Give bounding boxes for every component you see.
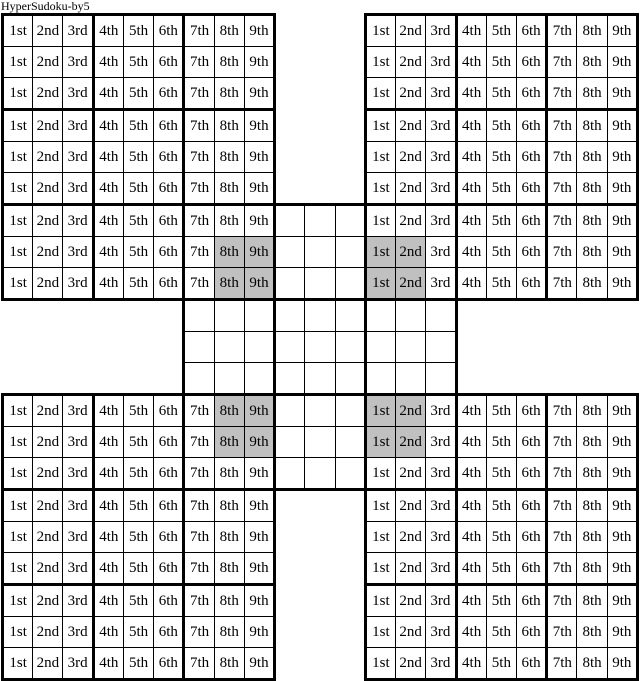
- sudoku-cell[interactable]: 7th: [184, 490, 214, 522]
- sudoku-cell[interactable]: 7th: [184, 648, 214, 680]
- sudoku-cell[interactable]: 5th: [486, 585, 516, 617]
- sudoku-cell[interactable]: 1st: [3, 110, 33, 142]
- sudoku-cell[interactable]: 3rd: [63, 427, 93, 458]
- sudoku-cell[interactable]: 6th: [516, 585, 546, 617]
- sudoku-cell[interactable]: 3rd: [63, 205, 93, 237]
- sudoku-cell[interactable]: 7th: [184, 427, 214, 458]
- sudoku-cell[interactable]: 2nd: [33, 173, 63, 205]
- sudoku-cell[interactable]: 2nd: [33, 78, 63, 110]
- sudoku-cell[interactable]: [426, 363, 456, 395]
- sudoku-cell[interactable]: 3rd: [63, 142, 93, 173]
- sudoku-cell[interactable]: 1st: [365, 205, 395, 237]
- sudoku-cell[interactable]: 3rd: [63, 553, 93, 585]
- sudoku-cell[interactable]: 5th: [123, 648, 153, 680]
- sudoku-cell[interactable]: 5th: [123, 110, 153, 142]
- sudoku-cell[interactable]: 3rd: [426, 237, 456, 268]
- sudoku-cell[interactable]: 4th: [93, 78, 123, 110]
- sudoku-cell[interactable]: 1st: [3, 553, 33, 585]
- sudoku-cell[interactable]: 5th: [486, 173, 516, 205]
- sudoku-cell[interactable]: 7th: [547, 237, 577, 268]
- sudoku-cell[interactable]: 8th: [577, 268, 607, 300]
- sudoku-cell[interactable]: 8th: [577, 648, 607, 680]
- sudoku-cell[interactable]: 6th: [154, 395, 184, 427]
- sudoku-cell[interactable]: 2nd: [396, 617, 426, 648]
- sudoku-cell[interactable]: 1st: [365, 490, 395, 522]
- sudoku-cell[interactable]: 7th: [547, 395, 577, 427]
- sudoku-cell[interactable]: 7th: [547, 458, 577, 490]
- sudoku-cell[interactable]: [275, 300, 305, 332]
- sudoku-cell[interactable]: 5th: [486, 617, 516, 648]
- sudoku-cell[interactable]: 3rd: [63, 395, 93, 427]
- sudoku-cell[interactable]: 6th: [516, 427, 546, 458]
- sudoku-cell[interactable]: 9th: [607, 78, 637, 110]
- sudoku-cell[interactable]: 3rd: [426, 142, 456, 173]
- sudoku-cell[interactable]: 6th: [516, 78, 546, 110]
- sudoku-cell[interactable]: 6th: [154, 142, 184, 173]
- sudoku-cell[interactable]: [335, 427, 365, 458]
- sudoku-cell[interactable]: 2nd: [396, 78, 426, 110]
- sudoku-cell[interactable]: 8th: [214, 427, 244, 458]
- sudoku-cell[interactable]: 2nd: [33, 617, 63, 648]
- sudoku-cell[interactable]: 7th: [184, 522, 214, 553]
- sudoku-cell[interactable]: 8th: [577, 237, 607, 268]
- sudoku-cell[interactable]: [305, 237, 335, 268]
- sudoku-cell[interactable]: [244, 332, 274, 363]
- sudoku-cell[interactable]: 3rd: [426, 553, 456, 585]
- sudoku-cell[interactable]: 8th: [577, 553, 607, 585]
- sudoku-cell[interactable]: 5th: [486, 522, 516, 553]
- sudoku-cell[interactable]: 5th: [123, 427, 153, 458]
- sudoku-cell[interactable]: 2nd: [396, 142, 426, 173]
- sudoku-cell[interactable]: 9th: [607, 173, 637, 205]
- sudoku-cell[interactable]: 8th: [214, 585, 244, 617]
- sudoku-cell[interactable]: 4th: [456, 205, 486, 237]
- sudoku-cell[interactable]: 9th: [244, 648, 274, 680]
- sudoku-cell[interactable]: 6th: [516, 553, 546, 585]
- sudoku-cell[interactable]: 1st: [365, 237, 395, 268]
- sudoku-cell[interactable]: 8th: [577, 458, 607, 490]
- sudoku-cell[interactable]: 2nd: [396, 237, 426, 268]
- sudoku-cell[interactable]: 2nd: [396, 458, 426, 490]
- sudoku-cell[interactable]: 3rd: [63, 15, 93, 47]
- sudoku-cell[interactable]: 1st: [365, 268, 395, 300]
- sudoku-cell[interactable]: [305, 300, 335, 332]
- sudoku-cell[interactable]: 2nd: [33, 142, 63, 173]
- sudoku-cell[interactable]: [275, 395, 305, 427]
- sudoku-cell[interactable]: 2nd: [33, 553, 63, 585]
- sudoku-cell[interactable]: 7th: [184, 268, 214, 300]
- sudoku-cell[interactable]: 3rd: [63, 617, 93, 648]
- sudoku-cell[interactable]: 3rd: [426, 47, 456, 78]
- sudoku-cell[interactable]: 9th: [607, 490, 637, 522]
- sudoku-cell[interactable]: [184, 363, 214, 395]
- sudoku-cell[interactable]: [335, 205, 365, 237]
- sudoku-cell[interactable]: 1st: [365, 173, 395, 205]
- sudoku-cell[interactable]: 4th: [456, 142, 486, 173]
- sudoku-cell[interactable]: 2nd: [33, 395, 63, 427]
- sudoku-cell[interactable]: 9th: [244, 110, 274, 142]
- sudoku-cell[interactable]: 8th: [577, 205, 607, 237]
- sudoku-cell[interactable]: [305, 458, 335, 490]
- sudoku-cell[interactable]: [426, 332, 456, 363]
- sudoku-cell[interactable]: 2nd: [33, 585, 63, 617]
- sudoku-cell[interactable]: 4th: [93, 427, 123, 458]
- sudoku-cell[interactable]: 9th: [244, 47, 274, 78]
- sudoku-cell[interactable]: 2nd: [33, 268, 63, 300]
- sudoku-cell[interactable]: 2nd: [396, 173, 426, 205]
- sudoku-cell[interactable]: 8th: [214, 648, 244, 680]
- sudoku-cell[interactable]: [426, 300, 456, 332]
- sudoku-cell[interactable]: [275, 427, 305, 458]
- sudoku-cell[interactable]: 6th: [516, 237, 546, 268]
- sudoku-cell[interactable]: 8th: [214, 522, 244, 553]
- sudoku-cell[interactable]: 8th: [214, 553, 244, 585]
- sudoku-cell[interactable]: [305, 363, 335, 395]
- sudoku-cell[interactable]: 1st: [365, 142, 395, 173]
- sudoku-cell[interactable]: 4th: [456, 490, 486, 522]
- sudoku-cell[interactable]: 4th: [93, 205, 123, 237]
- sudoku-cell[interactable]: 1st: [365, 15, 395, 47]
- sudoku-cell[interactable]: 1st: [365, 78, 395, 110]
- sudoku-cell[interactable]: [275, 205, 305, 237]
- sudoku-cell[interactable]: 5th: [123, 268, 153, 300]
- sudoku-cell[interactable]: 9th: [607, 617, 637, 648]
- sudoku-cell[interactable]: 6th: [154, 522, 184, 553]
- sudoku-cell[interactable]: 7th: [547, 617, 577, 648]
- sudoku-cell[interactable]: [335, 363, 365, 395]
- sudoku-cell[interactable]: 1st: [3, 15, 33, 47]
- sudoku-cell[interactable]: [365, 363, 395, 395]
- sudoku-cell[interactable]: 5th: [486, 237, 516, 268]
- sudoku-cell[interactable]: [305, 205, 335, 237]
- sudoku-cell[interactable]: 2nd: [396, 268, 426, 300]
- sudoku-cell[interactable]: 1st: [365, 553, 395, 585]
- sudoku-cell[interactable]: 1st: [365, 458, 395, 490]
- sudoku-cell[interactable]: [365, 332, 395, 363]
- sudoku-cell[interactable]: 2nd: [396, 110, 426, 142]
- sudoku-cell[interactable]: 9th: [244, 205, 274, 237]
- sudoku-cell[interactable]: 7th: [184, 15, 214, 47]
- sudoku-cell[interactable]: 5th: [123, 395, 153, 427]
- sudoku-cell[interactable]: 8th: [214, 142, 244, 173]
- sudoku-cell[interactable]: 1st: [3, 458, 33, 490]
- sudoku-cell[interactable]: 6th: [154, 617, 184, 648]
- sudoku-cell[interactable]: 3rd: [426, 110, 456, 142]
- sudoku-cell[interactable]: 8th: [577, 427, 607, 458]
- sudoku-cell[interactable]: [214, 363, 244, 395]
- sudoku-cell[interactable]: 3rd: [426, 395, 456, 427]
- sudoku-cell[interactable]: 4th: [93, 617, 123, 648]
- sudoku-cell[interactable]: 8th: [214, 110, 244, 142]
- sudoku-cell[interactable]: 3rd: [63, 268, 93, 300]
- sudoku-cell[interactable]: 4th: [93, 237, 123, 268]
- sudoku-cell[interactable]: 5th: [486, 458, 516, 490]
- sudoku-cell[interactable]: 9th: [607, 585, 637, 617]
- sudoku-cell[interactable]: 5th: [123, 585, 153, 617]
- sudoku-cell[interactable]: 8th: [214, 47, 244, 78]
- sudoku-cell[interactable]: 3rd: [426, 268, 456, 300]
- sudoku-cell[interactable]: 3rd: [63, 78, 93, 110]
- sudoku-cell[interactable]: 3rd: [63, 173, 93, 205]
- sudoku-cell[interactable]: 4th: [456, 268, 486, 300]
- sudoku-cell[interactable]: 9th: [244, 237, 274, 268]
- sudoku-cell[interactable]: 4th: [456, 427, 486, 458]
- sudoku-cell[interactable]: 8th: [214, 395, 244, 427]
- sudoku-cell[interactable]: 2nd: [396, 522, 426, 553]
- sudoku-cell[interactable]: 4th: [456, 585, 486, 617]
- sudoku-cell[interactable]: 9th: [607, 427, 637, 458]
- sudoku-cell[interactable]: 4th: [93, 585, 123, 617]
- sudoku-cell[interactable]: 4th: [456, 237, 486, 268]
- sudoku-cell[interactable]: 8th: [577, 78, 607, 110]
- sudoku-cell[interactable]: 1st: [3, 490, 33, 522]
- sudoku-cell[interactable]: 1st: [3, 268, 33, 300]
- sudoku-cell[interactable]: 6th: [154, 268, 184, 300]
- sudoku-cell[interactable]: 5th: [123, 490, 153, 522]
- sudoku-cell[interactable]: 4th: [456, 522, 486, 553]
- sudoku-cell[interactable]: 3rd: [426, 648, 456, 680]
- sudoku-cell[interactable]: 6th: [154, 78, 184, 110]
- sudoku-cell[interactable]: 4th: [93, 395, 123, 427]
- sudoku-cell[interactable]: 9th: [244, 78, 274, 110]
- sudoku-cell[interactable]: 6th: [516, 110, 546, 142]
- sudoku-cell[interactable]: [396, 363, 426, 395]
- sudoku-cell[interactable]: 9th: [607, 522, 637, 553]
- sudoku-cell[interactable]: 7th: [547, 205, 577, 237]
- sudoku-cell[interactable]: 6th: [516, 458, 546, 490]
- sudoku-cell[interactable]: 3rd: [63, 648, 93, 680]
- sudoku-cell[interactable]: 3rd: [63, 458, 93, 490]
- sudoku-cell[interactable]: 2nd: [33, 237, 63, 268]
- sudoku-cell[interactable]: 9th: [607, 205, 637, 237]
- sudoku-cell[interactable]: 8th: [577, 110, 607, 142]
- sudoku-cell[interactable]: [184, 332, 214, 363]
- sudoku-cell[interactable]: 7th: [547, 648, 577, 680]
- sudoku-cell[interactable]: 5th: [123, 47, 153, 78]
- sudoku-cell[interactable]: [214, 300, 244, 332]
- sudoku-cell[interactable]: 5th: [486, 142, 516, 173]
- sudoku-cell[interactable]: 6th: [516, 142, 546, 173]
- sudoku-cell[interactable]: 5th: [486, 648, 516, 680]
- sudoku-cell[interactable]: 6th: [154, 427, 184, 458]
- sudoku-cell[interactable]: 7th: [547, 490, 577, 522]
- sudoku-cell[interactable]: 4th: [93, 110, 123, 142]
- sudoku-cell[interactable]: 8th: [214, 205, 244, 237]
- sudoku-cell[interactable]: 8th: [577, 47, 607, 78]
- sudoku-cell[interactable]: 1st: [3, 648, 33, 680]
- sudoku-cell[interactable]: 8th: [577, 15, 607, 47]
- sudoku-cell[interactable]: 6th: [516, 47, 546, 78]
- sudoku-cell[interactable]: 6th: [154, 553, 184, 585]
- sudoku-cell[interactable]: [244, 363, 274, 395]
- sudoku-cell[interactable]: 1st: [3, 522, 33, 553]
- sudoku-cell[interactable]: 7th: [184, 110, 214, 142]
- sudoku-cell[interactable]: 4th: [456, 648, 486, 680]
- sudoku-cell[interactable]: [214, 332, 244, 363]
- sudoku-cell[interactable]: 5th: [486, 15, 516, 47]
- sudoku-cell[interactable]: 9th: [607, 15, 637, 47]
- sudoku-cell[interactable]: 1st: [3, 585, 33, 617]
- sudoku-cell[interactable]: 2nd: [33, 490, 63, 522]
- sudoku-cell[interactable]: 8th: [577, 395, 607, 427]
- sudoku-cell[interactable]: 6th: [516, 522, 546, 553]
- sudoku-cell[interactable]: 8th: [577, 173, 607, 205]
- sudoku-cell[interactable]: 3rd: [426, 490, 456, 522]
- sudoku-cell[interactable]: 2nd: [396, 15, 426, 47]
- sudoku-cell[interactable]: [396, 332, 426, 363]
- sudoku-cell[interactable]: 5th: [486, 490, 516, 522]
- sudoku-cell[interactable]: [335, 237, 365, 268]
- sudoku-cell[interactable]: 5th: [486, 553, 516, 585]
- sudoku-cell[interactable]: 4th: [93, 15, 123, 47]
- sudoku-cell[interactable]: 9th: [607, 237, 637, 268]
- sudoku-cell[interactable]: 5th: [123, 617, 153, 648]
- sudoku-cell[interactable]: 3rd: [426, 522, 456, 553]
- sudoku-cell[interactable]: 1st: [3, 47, 33, 78]
- sudoku-cell[interactable]: 9th: [244, 15, 274, 47]
- sudoku-cell[interactable]: 8th: [214, 458, 244, 490]
- sudoku-cell[interactable]: 7th: [547, 427, 577, 458]
- sudoku-cell[interactable]: 6th: [516, 205, 546, 237]
- sudoku-cell[interactable]: [305, 427, 335, 458]
- sudoku-cell[interactable]: 3rd: [426, 585, 456, 617]
- sudoku-cell[interactable]: 6th: [154, 490, 184, 522]
- sudoku-cell[interactable]: 6th: [516, 395, 546, 427]
- sudoku-cell[interactable]: 4th: [93, 522, 123, 553]
- sudoku-cell[interactable]: 4th: [93, 142, 123, 173]
- sudoku-cell[interactable]: 9th: [244, 427, 274, 458]
- sudoku-cell[interactable]: 3rd: [426, 617, 456, 648]
- sudoku-cell[interactable]: 8th: [214, 237, 244, 268]
- sudoku-cell[interactable]: 7th: [547, 15, 577, 47]
- sudoku-cell[interactable]: 1st: [3, 205, 33, 237]
- sudoku-cell[interactable]: 7th: [184, 173, 214, 205]
- sudoku-cell[interactable]: [305, 268, 335, 300]
- sudoku-cell[interactable]: 5th: [486, 268, 516, 300]
- sudoku-cell[interactable]: [275, 458, 305, 490]
- sudoku-cell[interactable]: 7th: [547, 78, 577, 110]
- sudoku-cell[interactable]: [335, 458, 365, 490]
- sudoku-cell[interactable]: [244, 300, 274, 332]
- sudoku-cell[interactable]: 4th: [456, 15, 486, 47]
- sudoku-cell[interactable]: 2nd: [396, 490, 426, 522]
- sudoku-cell[interactable]: [335, 332, 365, 363]
- sudoku-cell[interactable]: [275, 363, 305, 395]
- sudoku-cell[interactable]: 7th: [547, 585, 577, 617]
- sudoku-cell[interactable]: 6th: [516, 15, 546, 47]
- sudoku-cell[interactable]: 4th: [93, 458, 123, 490]
- sudoku-cell[interactable]: 3rd: [63, 585, 93, 617]
- sudoku-cell[interactable]: 2nd: [33, 205, 63, 237]
- sudoku-cell[interactable]: 9th: [244, 553, 274, 585]
- sudoku-cell[interactable]: 8th: [214, 490, 244, 522]
- sudoku-cell[interactable]: 5th: [486, 427, 516, 458]
- sudoku-cell[interactable]: 5th: [123, 78, 153, 110]
- sudoku-cell[interactable]: 5th: [123, 237, 153, 268]
- sudoku-cell[interactable]: 6th: [154, 47, 184, 78]
- sudoku-cell[interactable]: [305, 395, 335, 427]
- sudoku-cell[interactable]: 5th: [486, 78, 516, 110]
- sudoku-cell[interactable]: 9th: [244, 617, 274, 648]
- sudoku-cell[interactable]: 9th: [244, 395, 274, 427]
- sudoku-cell[interactable]: 9th: [244, 490, 274, 522]
- sudoku-cell[interactable]: 2nd: [33, 522, 63, 553]
- sudoku-cell[interactable]: 7th: [184, 142, 214, 173]
- sudoku-cell[interactable]: 8th: [577, 522, 607, 553]
- sudoku-cell[interactable]: 3rd: [426, 458, 456, 490]
- sudoku-cell[interactable]: [275, 332, 305, 363]
- sudoku-cell[interactable]: 8th: [577, 490, 607, 522]
- sudoku-cell[interactable]: 8th: [214, 78, 244, 110]
- sudoku-cell[interactable]: 2nd: [396, 395, 426, 427]
- sudoku-cell[interactable]: [365, 300, 395, 332]
- sudoku-cell[interactable]: 4th: [456, 173, 486, 205]
- sudoku-cell[interactable]: 9th: [244, 585, 274, 617]
- sudoku-cell[interactable]: 8th: [577, 585, 607, 617]
- sudoku-cell[interactable]: 9th: [244, 458, 274, 490]
- sudoku-cell[interactable]: 1st: [365, 47, 395, 78]
- sudoku-cell[interactable]: 9th: [607, 648, 637, 680]
- sudoku-cell[interactable]: 5th: [123, 522, 153, 553]
- sudoku-cell[interactable]: 5th: [123, 142, 153, 173]
- sudoku-cell[interactable]: 9th: [607, 47, 637, 78]
- sudoku-cell[interactable]: 5th: [123, 173, 153, 205]
- sudoku-cell[interactable]: 6th: [516, 617, 546, 648]
- sudoku-cell[interactable]: 7th: [184, 78, 214, 110]
- sudoku-cell[interactable]: 8th: [214, 268, 244, 300]
- sudoku-cell[interactable]: [305, 332, 335, 363]
- sudoku-cell[interactable]: 4th: [93, 173, 123, 205]
- sudoku-cell[interactable]: 4th: [93, 268, 123, 300]
- sudoku-cell[interactable]: 6th: [154, 648, 184, 680]
- sudoku-cell[interactable]: 7th: [184, 617, 214, 648]
- sudoku-cell[interactable]: 1st: [3, 237, 33, 268]
- sudoku-cell[interactable]: 1st: [3, 142, 33, 173]
- sudoku-cell[interactable]: 7th: [547, 142, 577, 173]
- sudoku-cell[interactable]: 1st: [3, 78, 33, 110]
- sudoku-cell[interactable]: [275, 237, 305, 268]
- sudoku-cell[interactable]: 2nd: [396, 553, 426, 585]
- sudoku-cell[interactable]: 6th: [154, 15, 184, 47]
- sudoku-cell[interactable]: 6th: [154, 205, 184, 237]
- sudoku-cell[interactable]: 9th: [607, 553, 637, 585]
- sudoku-cell[interactable]: 6th: [154, 110, 184, 142]
- sudoku-cell[interactable]: 3rd: [63, 47, 93, 78]
- sudoku-cell[interactable]: 2nd: [396, 47, 426, 78]
- sudoku-cell[interactable]: 7th: [547, 47, 577, 78]
- sudoku-cell[interactable]: 9th: [244, 522, 274, 553]
- sudoku-cell[interactable]: 6th: [154, 173, 184, 205]
- sudoku-cell[interactable]: 4th: [456, 395, 486, 427]
- sudoku-cell[interactable]: 1st: [365, 617, 395, 648]
- sudoku-cell[interactable]: 4th: [456, 553, 486, 585]
- sudoku-cell[interactable]: 5th: [486, 205, 516, 237]
- sudoku-cell[interactable]: 4th: [456, 458, 486, 490]
- sudoku-cell[interactable]: 1st: [365, 522, 395, 553]
- sudoku-cell[interactable]: 1st: [3, 617, 33, 648]
- sudoku-cell[interactable]: 3rd: [63, 522, 93, 553]
- sudoku-cell[interactable]: 4th: [456, 47, 486, 78]
- sudoku-cell[interactable]: 1st: [3, 395, 33, 427]
- sudoku-cell[interactable]: 4th: [456, 617, 486, 648]
- sudoku-cell[interactable]: 7th: [547, 110, 577, 142]
- sudoku-cell[interactable]: 1st: [3, 427, 33, 458]
- sudoku-cell[interactable]: 9th: [607, 110, 637, 142]
- sudoku-cell[interactable]: [335, 268, 365, 300]
- sudoku-cell[interactable]: 9th: [244, 142, 274, 173]
- sudoku-cell[interactable]: 5th: [123, 553, 153, 585]
- sudoku-cell[interactable]: 3rd: [426, 205, 456, 237]
